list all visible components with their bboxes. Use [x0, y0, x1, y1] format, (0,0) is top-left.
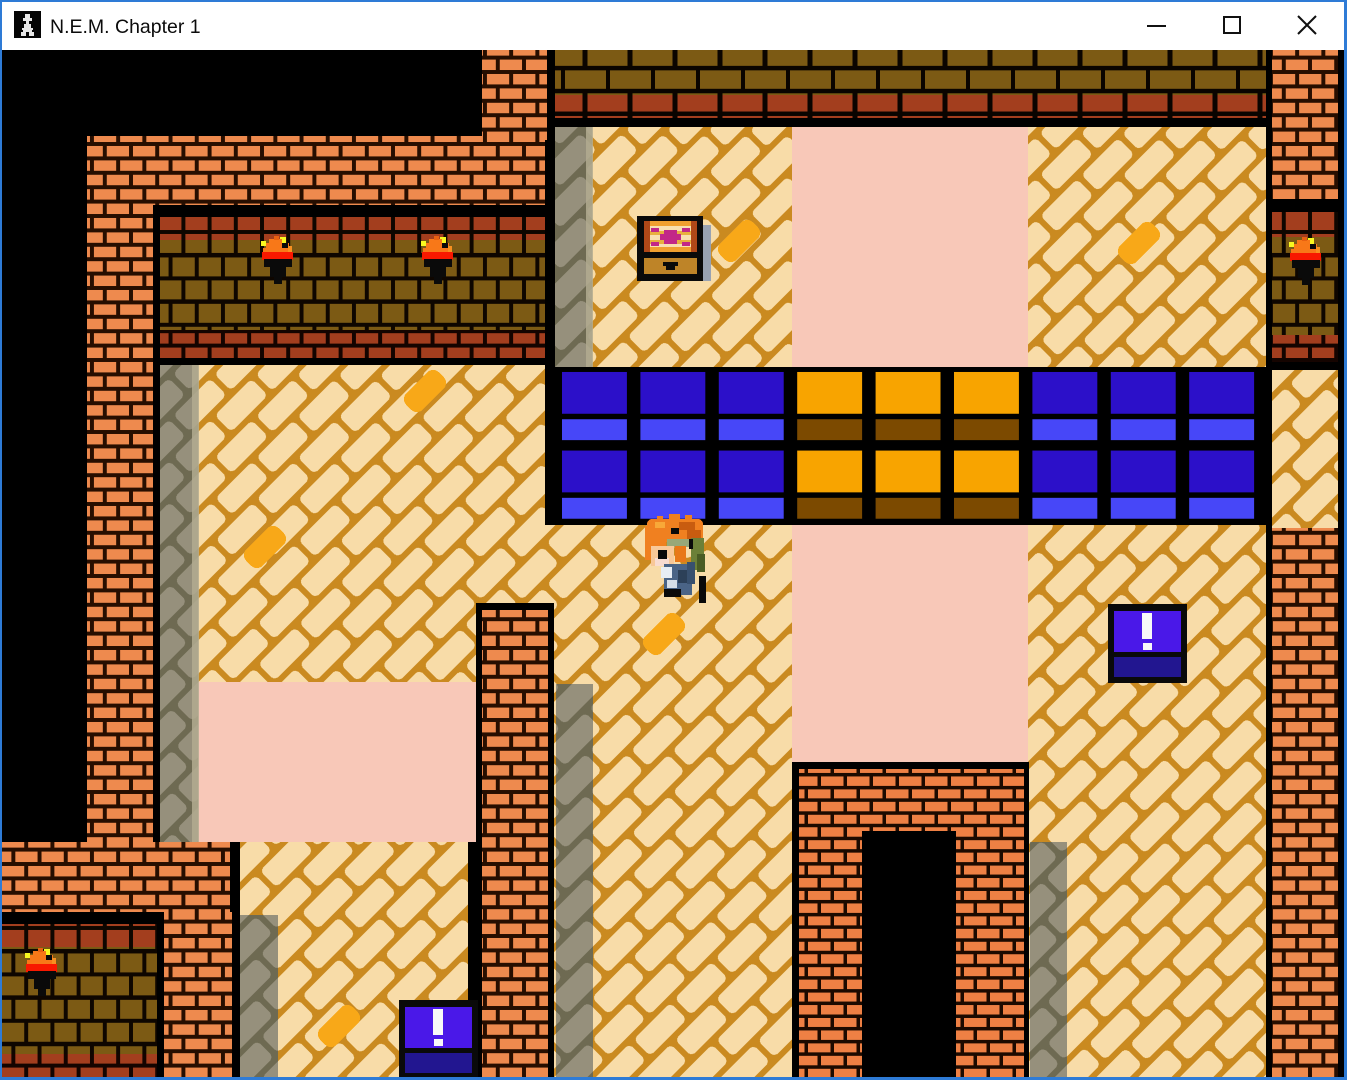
svg-text:N.E.M. Chapter 1: N.E.M. Chapter 1: [50, 16, 201, 38]
